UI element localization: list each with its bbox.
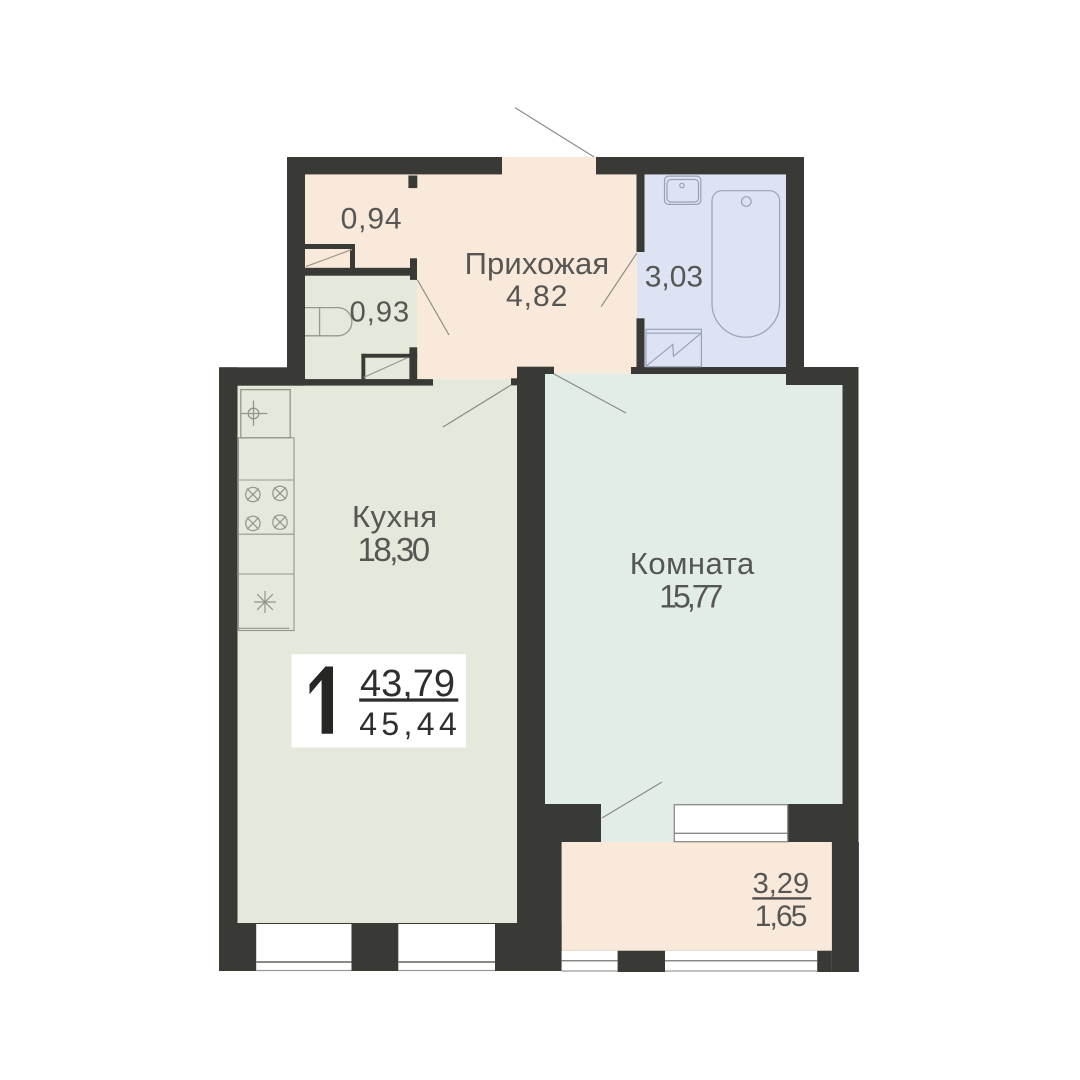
svg-text:45,44: 45,44 [359, 706, 457, 742]
svg-text:18,30: 18,30 [358, 531, 431, 568]
svg-text:Комната: Комната [630, 546, 755, 581]
svg-text:Прихожая: Прихожая [465, 246, 610, 281]
svg-text:3,29: 3,29 [753, 868, 810, 900]
svg-text:0,93: 0,93 [350, 297, 410, 329]
svg-text:0,94: 0,94 [341, 203, 402, 236]
svg-text:Кухня: Кухня [352, 499, 437, 534]
svg-text:15,77: 15,77 [659, 579, 723, 615]
svg-text:3,03: 3,03 [645, 261, 703, 294]
svg-text:4,82: 4,82 [506, 280, 567, 313]
svg-text:1,65: 1,65 [755, 900, 808, 933]
